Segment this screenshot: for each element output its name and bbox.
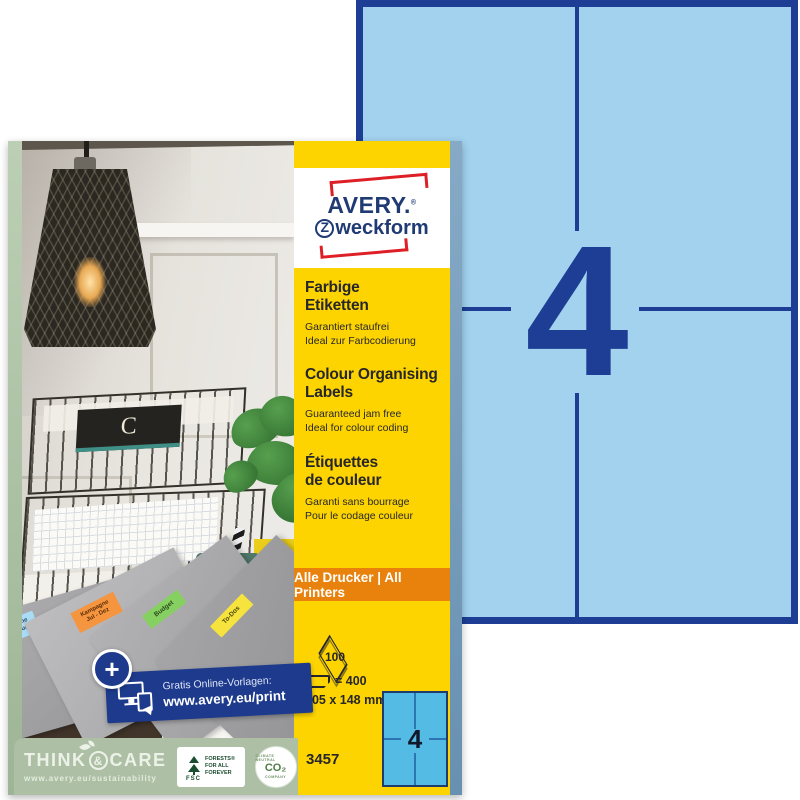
brand-avery: AVERY.® (327, 193, 416, 217)
folder-fan: Kampagne Jan – Jun Kampagne Jul - Dez Bu… (22, 566, 294, 751)
wire-letter-tray-top: C (28, 387, 247, 495)
brand-zweckform-text: weckform (335, 217, 428, 239)
box-info-strip: AVERY.® Z weckform Farbige Etiketten Gar… (294, 141, 450, 795)
title-fr: Étiquettes de couleur (305, 454, 446, 491)
product-title-de: Farbige Etiketten Garantiert staufrei Id… (305, 279, 446, 348)
sheet-divider-vertical-bottom (575, 393, 579, 617)
monitor-base (124, 703, 138, 706)
sustainability-bar: THINK & CARE www.avery.eu/sustainability… (14, 738, 298, 795)
think-text: THINK (24, 750, 87, 771)
think-and-care-logo: THINK & CARE www.avery.eu/sustainability (24, 750, 167, 783)
notebook-letter: C (120, 412, 137, 440)
subtitle-en: Guaranteed jam free Ideal for colour cod… (305, 407, 446, 435)
box-right-edge (450, 141, 462, 795)
ampersand-circle-icon: & (89, 751, 108, 770)
label-count-row: = 400 (306, 674, 367, 688)
think-care-line: THINK & CARE (24, 750, 167, 771)
mini-divider-vertical-bottom (414, 753, 416, 785)
light-bulb (74, 257, 106, 307)
subtitle-fr-1: Garanti sans bourrage (305, 495, 446, 509)
product-number: 3457 (306, 751, 339, 768)
subtitle-fr-2: Pour le codage couleur (305, 509, 446, 523)
fsc-certification-logo: FSC FORESTS® FOR ALL FOREVER (177, 747, 245, 787)
product-box: C HEY Kampagne Jan – Jun (8, 141, 462, 795)
title-en: Colour Organising Labels (305, 366, 446, 403)
product-title-fr: Étiquettes de couleur Garanti sans bourr… (305, 454, 446, 523)
plus-badge: + (92, 649, 132, 689)
subtitle-de-1: Garantiert staufrei (305, 320, 446, 334)
sheet-stack-icon: 100 (306, 638, 364, 676)
fsc-tree-icon: FSC (186, 751, 201, 782)
brand-zweckform: Z weckform (315, 217, 428, 239)
subtitle-fr: Garanti sans bourrage Pour le codage cou… (305, 495, 446, 523)
sustainability-url: www.avery.eu/sustainability (24, 774, 167, 783)
product-packshot: 4 C (0, 0, 800, 800)
label-size: 105 x 148 mm (305, 693, 386, 707)
subtitle-en-2: Ideal for colour coding (305, 421, 446, 435)
circled-z-icon: Z (315, 219, 334, 238)
registered-mark: ® (411, 199, 417, 206)
color-label-yellow: To-Dos (210, 593, 253, 637)
sheet-divider-vertical-top (575, 7, 579, 231)
wall-shelf (134, 223, 294, 237)
label-sheet-preview-small: 4 (382, 691, 448, 787)
subtitle-en-1: Guaranteed jam free (305, 407, 446, 421)
logo-red-bracket-bottom (320, 238, 409, 259)
fsc-tree-mid (188, 758, 200, 772)
co2-label: CO₂ (265, 762, 286, 774)
care-text: CARE (110, 750, 167, 771)
all-printers-banner: Alle Drucker | All Printers (294, 568, 450, 601)
subtitle-de-2: Ideal zur Farbcodierung (305, 334, 446, 348)
co2-top-text: CLIMATE NEUTRAL (256, 754, 296, 762)
banner-text: Gratis Online-Vorlagen: www.avery.eu/pri… (162, 674, 286, 710)
fsc-abbr: FSC (186, 776, 201, 782)
brand-logo-panel: AVERY.® Z weckform (294, 168, 450, 268)
brand-avery-text: AVERY. (327, 192, 411, 218)
color-label-green: Budget (142, 590, 187, 629)
sheet-count: 100 (306, 650, 364, 664)
notebook: C (76, 405, 182, 453)
subtitle-de: Garantiert staufrei Ideal zur Farbcodier… (305, 320, 446, 348)
co2-neutral-logo: CLIMATE NEUTRAL CO₂ COMPANY (255, 746, 297, 788)
box-left-edge (8, 141, 22, 795)
co2-bottom-text: COMPANY (265, 775, 286, 779)
label-count: = 400 (335, 674, 367, 688)
fsc-slogan: FORESTS® FOR ALL FOREVER (205, 756, 235, 777)
product-title-en: Colour Organising Labels Guaranteed jam … (305, 366, 446, 435)
fsc-tree-trunk (193, 772, 195, 775)
title-de: Farbige Etiketten (305, 279, 446, 316)
mini-labels-count: 4 (384, 726, 446, 752)
